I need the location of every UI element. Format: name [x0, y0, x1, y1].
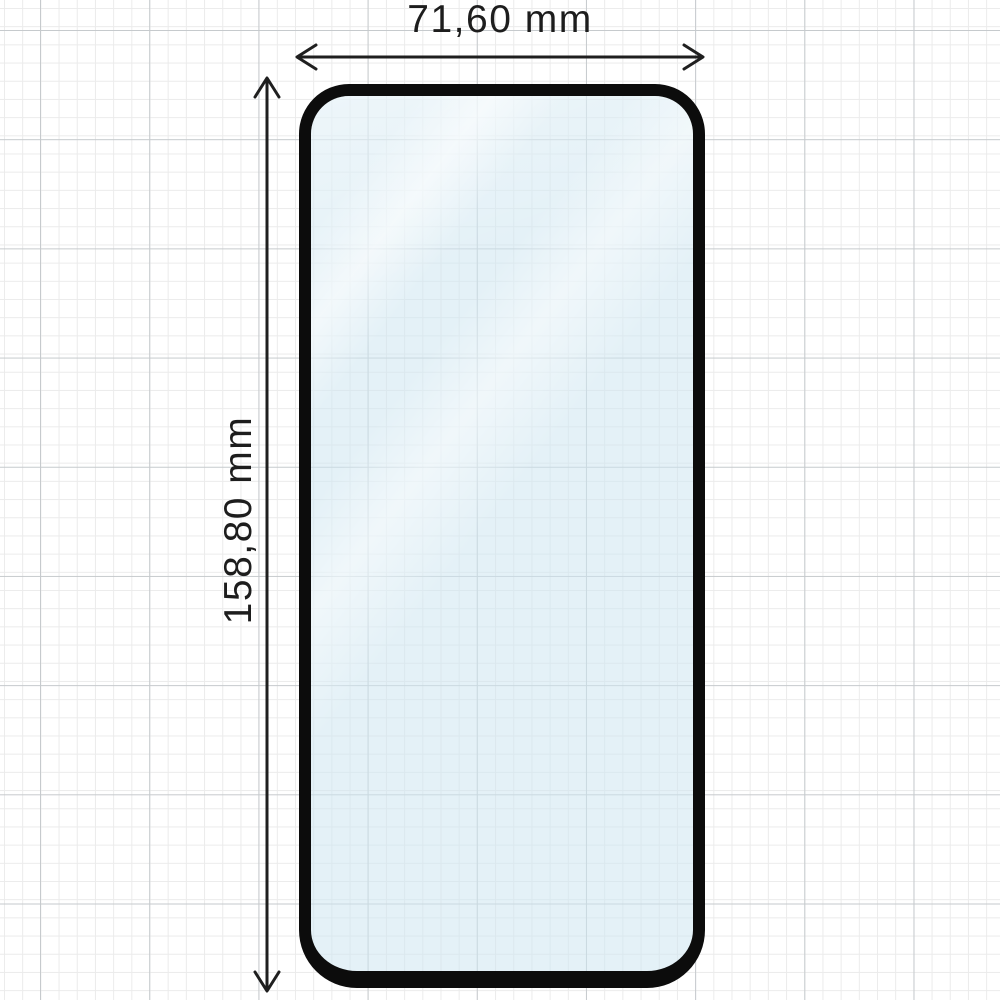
width-dimension-arrow	[297, 45, 703, 69]
height-dimension-label: 158,80 mm	[214, 369, 264, 671]
graph-paper-canvas: 71,60 mm 158,80 mm	[0, 0, 1000, 1000]
width-dimension-label: 71,60 mm	[300, 0, 700, 44]
dimension-lines	[0, 0, 1000, 1000]
